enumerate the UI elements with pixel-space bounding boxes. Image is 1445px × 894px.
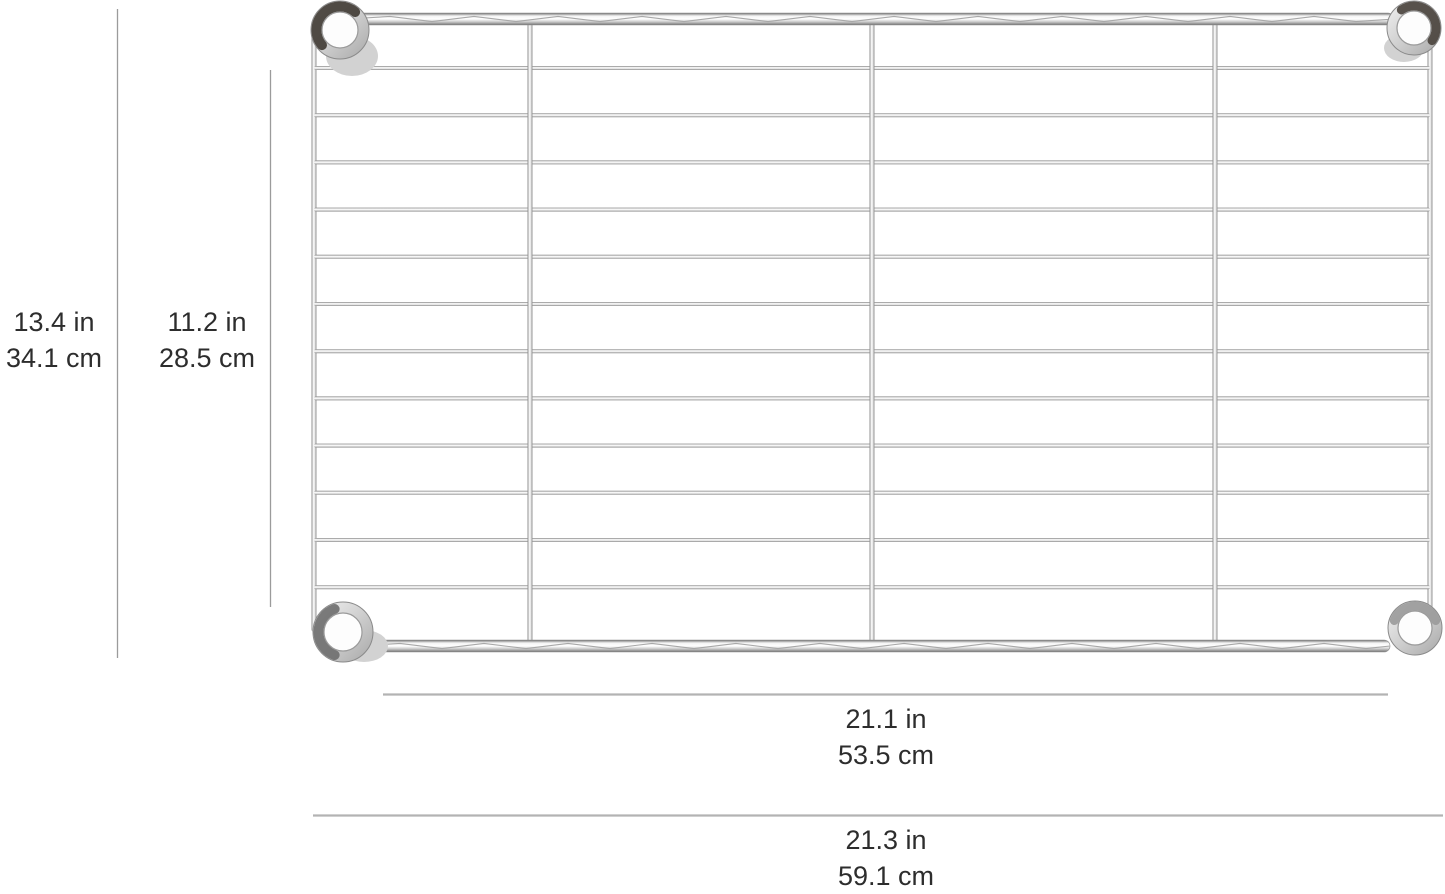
label-inner-width: 21.1 in 53.5 cm <box>838 701 934 773</box>
collar-hole <box>1398 611 1432 645</box>
shelf-edge-wire-right <box>1428 28 1433 628</box>
shelf-back-rail <box>358 640 1390 652</box>
corner-collar <box>311 1 378 76</box>
label-inner-height: 11.2 in 28.5 cm <box>159 304 255 376</box>
corner-collar <box>313 602 388 662</box>
label-inner-height-cm: 28.5 cm <box>159 340 255 376</box>
collar-hole <box>322 12 358 48</box>
shelf-vertical-rail <box>528 22 533 646</box>
label-inner-width-cm: 53.5 cm <box>838 737 934 773</box>
label-outer-width-cm: 59.1 cm <box>838 858 934 894</box>
collar-hole <box>324 613 362 651</box>
shelf-grid <box>312 13 1433 652</box>
collar-hole <box>1397 11 1431 45</box>
label-inner-height-in: 11.2 in <box>159 304 255 340</box>
label-outer-height: 13.4 in 34.1 cm <box>6 304 102 376</box>
corner-collars <box>311 1 1442 662</box>
label-outer-height-cm: 34.1 cm <box>6 340 102 376</box>
shelf-illustration <box>0 0 1445 886</box>
label-outer-width: 21.3 in 59.1 cm <box>838 822 934 894</box>
corner-collar <box>1388 601 1442 655</box>
label-outer-width-in: 21.3 in <box>838 822 934 858</box>
shelf-vertical-rail <box>1213 22 1218 646</box>
shelf-vertical-rail <box>870 22 875 646</box>
label-inner-width-in: 21.1 in <box>838 701 934 737</box>
product-dimension-diagram: 13.4 in 34.1 cm 11.2 in 28.5 cm 21.1 in … <box>0 0 1445 886</box>
label-outer-height-in: 13.4 in <box>6 304 102 340</box>
